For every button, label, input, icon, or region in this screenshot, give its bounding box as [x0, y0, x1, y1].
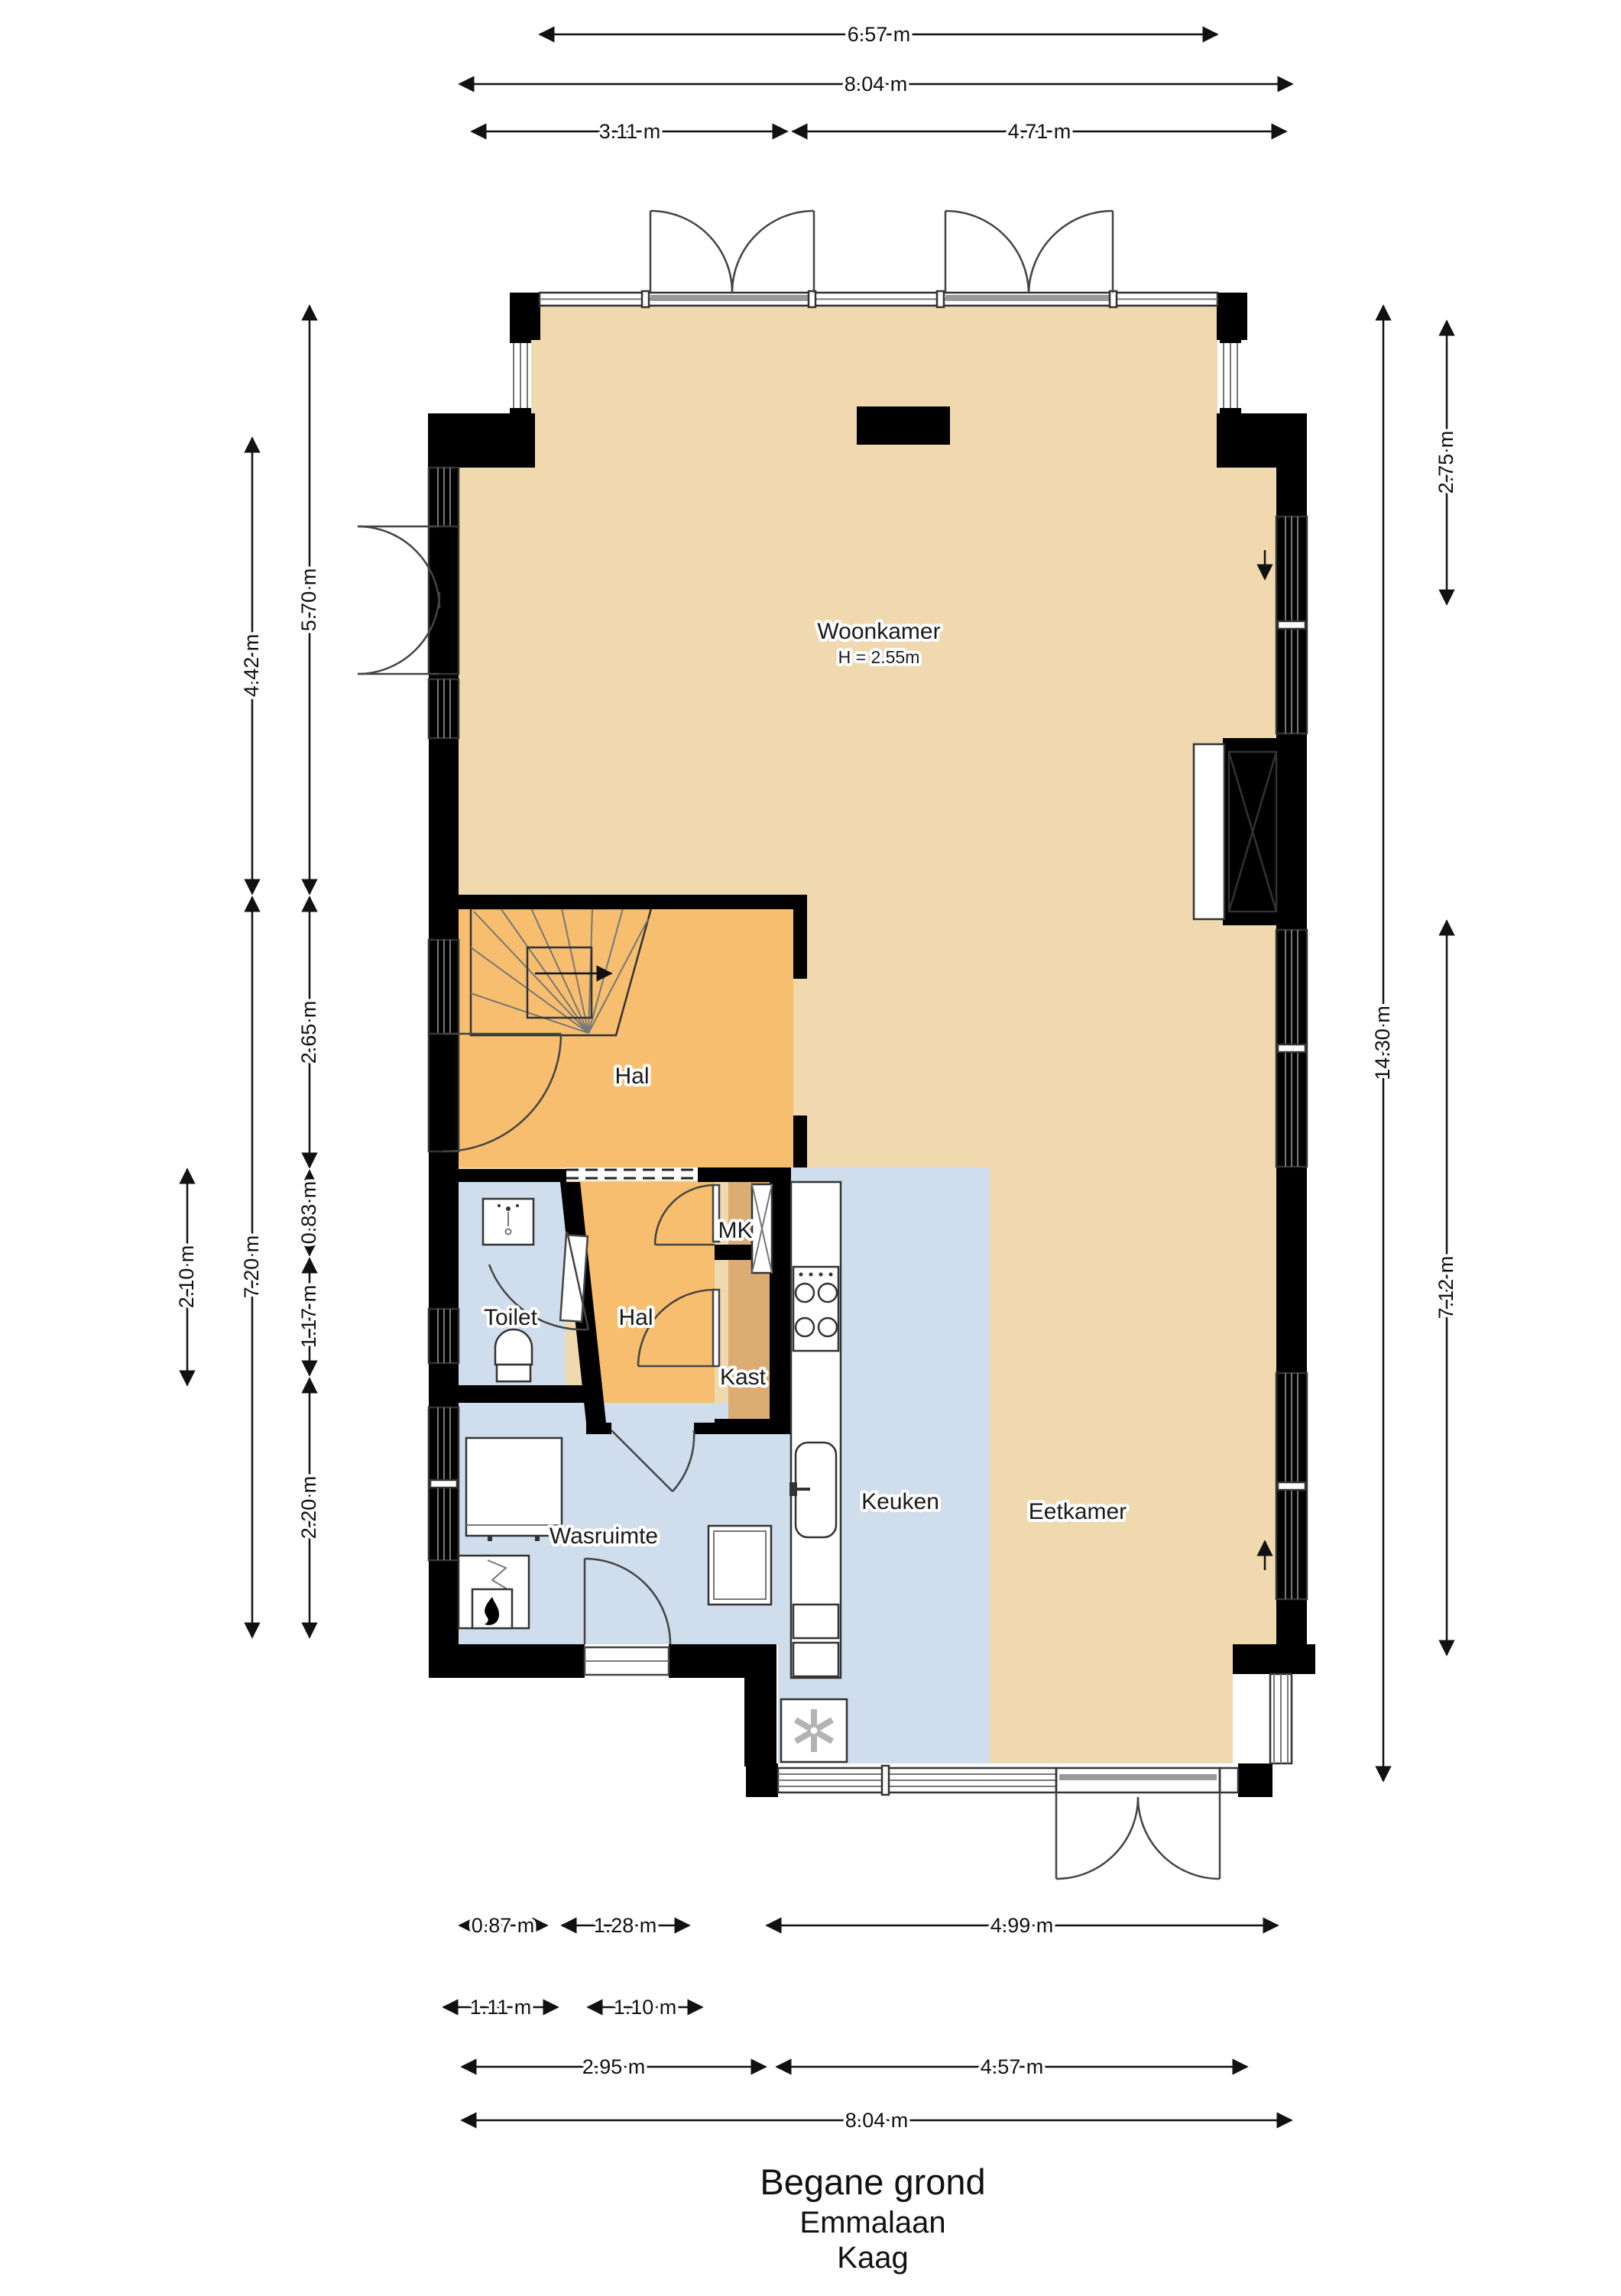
dim-bottom-128: 1.28 m [594, 1914, 657, 1937]
wall-post-bottom-left [746, 1763, 778, 1797]
title-floor: Begane grond [760, 2162, 985, 2202]
wall-step-bottom-right [1233, 1644, 1315, 1674]
wall-toilet-bottom [429, 1385, 589, 1403]
floor-plan-page: Woonkamer H = 2.55m Hal Toilet Hal MK Ka… [0, 0, 1621, 2292]
wall-kast-bottom [715, 1419, 791, 1434]
dim-bottom-499: 4.99 m [990, 1914, 1054, 1937]
dim-bottom-110: 1.10 m [614, 1996, 677, 2019]
boiler-icon [459, 1556, 529, 1628]
dim-left-lower: 7.20 m [240, 1235, 263, 1299]
dim-left-083: 0.83 m [297, 1181, 320, 1245]
cabinet [793, 1605, 838, 1638]
window-upper-right [1220, 343, 1241, 408]
dim-bottom-087: 0.87 m [472, 1914, 535, 1937]
dim-top-total: 8.04 m [845, 73, 908, 96]
label-eetkamer: Eetkamer [1029, 1499, 1127, 1524]
label-hal-upper: Hal [614, 1064, 649, 1089]
kitchen-sink-icon [789, 1443, 836, 1537]
washbasin-icon [483, 1199, 533, 1245]
dim-right-upper: 2.75 m [1435, 431, 1457, 494]
ventilation-fan-icon [781, 1699, 847, 1762]
dim-left-woonkamer: 4.42 m [240, 634, 263, 698]
french-door-top-right [945, 211, 1113, 293]
door-sill [650, 295, 814, 301]
window-bottom-band [778, 1766, 1238, 1795]
wall-post-bottom-right [1238, 1763, 1272, 1797]
top-facade [540, 211, 1217, 307]
dim-top-inner: 6.57 m [848, 23, 911, 46]
label-wasruimte: Wasruimte [550, 1524, 658, 1549]
wall-post-top-left [510, 293, 540, 340]
label-woonkamer: Woonkamer [817, 619, 940, 644]
floor-plan: Woonkamer H = 2.55m Hal Toilet Hal MK Ka… [0, 0, 1621, 2292]
hearth [1194, 744, 1224, 919]
french-door-top-left [650, 211, 814, 293]
dim-top-right-section: 4.71 m [1008, 120, 1071, 143]
wall-step-right [1217, 413, 1307, 468]
dim-bottom-457: 4.57 m [981, 2055, 1044, 2078]
dryer-icon [708, 1526, 771, 1605]
floor-kast [728, 1260, 770, 1419]
shaft-x-icon [752, 1184, 772, 1273]
door-sill [945, 295, 1113, 301]
wall-step-left [428, 413, 535, 468]
label-woonkamer-height: H = 2.55m [838, 647, 920, 667]
kitchen-counter [789, 1182, 841, 1678]
label-keuken: Keuken [861, 1489, 939, 1514]
title-city: Kaag [837, 2241, 908, 2275]
wall-post-top-right [1217, 293, 1247, 340]
label-toilet: Toilet [484, 1305, 538, 1330]
window-bottom-right [1270, 1674, 1292, 1763]
label-hal-lower: Hal [618, 1305, 653, 1330]
dim-left-toilet: 2.10 m [175, 1245, 198, 1309]
dim-left-upper: 5.70 m [297, 568, 320, 632]
stove-icon [793, 1267, 838, 1351]
dim-bottom-total: 8.04 m [845, 2109, 909, 2132]
wall-wasruimte-bottom-left [429, 1644, 585, 1678]
dim-right-lower: 7.12 m [1435, 1256, 1457, 1320]
dim-right-total: 14.30 m [1371, 1006, 1394, 1080]
title-block: Begane grond Emmalaan Kaag [760, 2162, 985, 2275]
wall-wasruimte-bottom-right [669, 1644, 776, 1678]
flue-block [857, 406, 950, 445]
dim-left-wasruimte: 2.20 m [297, 1476, 320, 1540]
opening-dashed [566, 1167, 698, 1180]
cabinet [793, 1643, 838, 1676]
dim-bottom-111: 1.11 m [470, 1996, 532, 2019]
chimney-icon [1194, 738, 1307, 925]
wall-toilet-top [456, 1169, 566, 1182]
dim-bottom-295: 2.95 m [582, 2055, 646, 2078]
toilet-icon [495, 1329, 532, 1381]
title-street: Emmalaan [799, 2206, 945, 2239]
wall-step-down-keuken [744, 1678, 776, 1767]
dim-top-left-section: 3.11 m [599, 120, 661, 143]
wall-woonkamer-hal [459, 895, 807, 909]
label-kast: Kast [720, 1365, 767, 1390]
label-mk: MK [718, 1218, 753, 1243]
window-upper-left [510, 343, 531, 408]
washing-machine-icon [466, 1438, 562, 1541]
french-door-bottom [1056, 1792, 1220, 1879]
dim-left-hal: 2.65 m [297, 1001, 320, 1064]
dim-left-117: 1.17 m [297, 1285, 320, 1349]
